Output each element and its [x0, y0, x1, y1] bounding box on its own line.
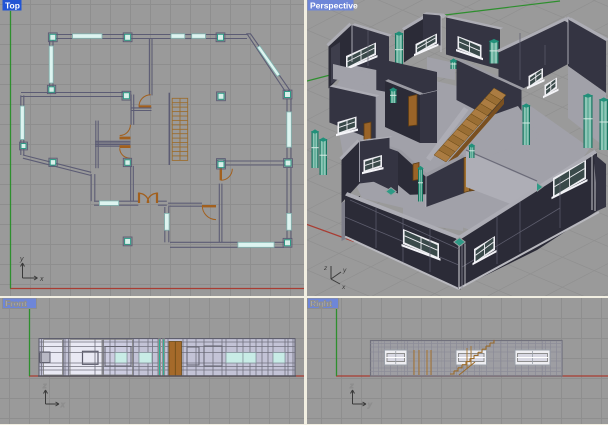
svg-text:x: x [39, 276, 44, 283]
svg-text:z: z [42, 383, 47, 390]
svg-text:y: y [367, 402, 372, 409]
svg-text:Front: Front [5, 299, 27, 309]
svg-text:Top: Top [5, 1, 20, 11]
svg-text:z: z [349, 383, 354, 390]
svg-text:x: x [60, 402, 65, 409]
svg-text:Right: Right [310, 299, 332, 309]
svg-text:y: y [19, 256, 24, 263]
svg-text:Perspective: Perspective [310, 1, 358, 11]
